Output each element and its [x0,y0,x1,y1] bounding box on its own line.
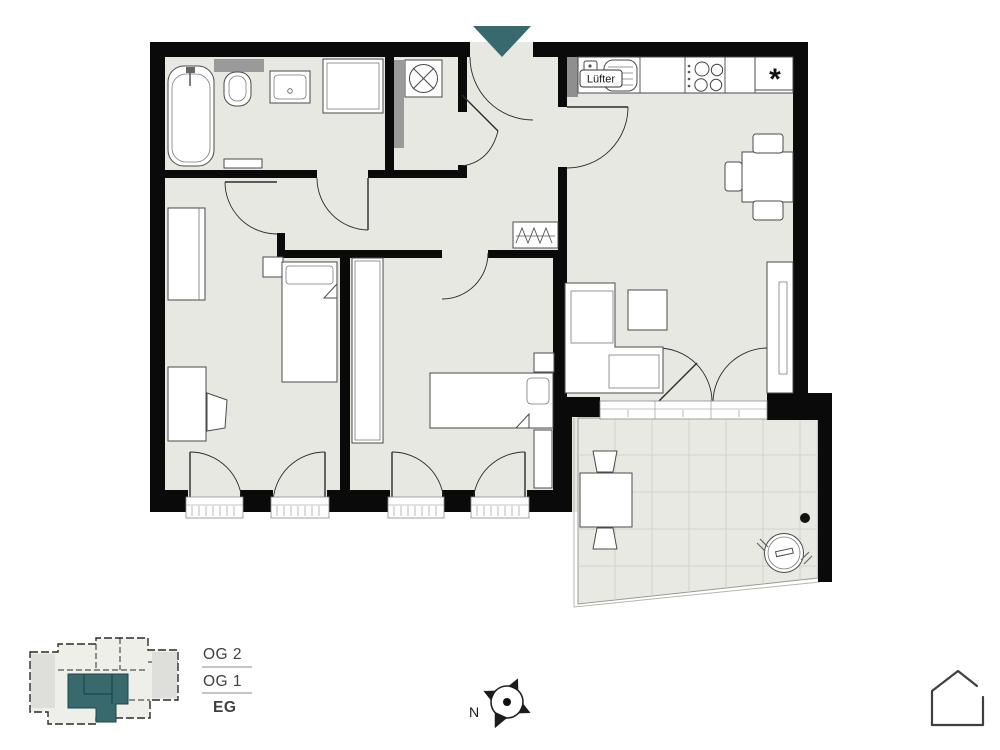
minimap [30,638,178,724]
floor-item-og2[interactable]: OG 2 [203,646,242,663]
toilet-cistern [214,59,264,72]
terrace-table-icon [580,473,632,527]
terrace-chair-icon [593,451,617,472]
minimap-shading [152,652,177,698]
bed-icon [282,262,337,382]
sideboard-icon [767,262,793,393]
terrace-chair-icon [593,528,617,549]
floor-item-og1[interactable]: OG 1 [203,673,242,690]
freezer-label: * [769,63,781,96]
wardrobe-icon [168,208,205,300]
coffee-table-icon [628,290,667,330]
floorplan-page: Lüfter * [0,0,1000,750]
nightstand-icon [263,257,283,277]
wardrobe-icon [352,258,383,443]
svg-text:Lüfter: Lüfter [587,74,615,86]
house-icon [932,671,983,725]
floor-item-eg[interactable]: EG [213,699,236,716]
terrace [574,418,820,607]
dining-chair-icon [753,201,783,220]
minimap-shading [31,654,55,708]
toilet-icon [224,72,251,106]
washbasin-icon [270,71,310,103]
bathtub-icon [168,66,214,166]
compass-icon: N [469,676,533,731]
nightstand-icon [534,353,554,372]
ventilation-label: Lüfter [580,70,622,87]
washing-machine-icon [405,60,442,97]
bed-icon [430,373,553,428]
floor-selector: OG 2 OG 1 EG [202,646,252,716]
kitchen-end-panel [567,57,578,97]
desk-chair-icon [207,393,227,431]
shower-icon [323,59,383,113]
bathmat-icon [224,159,262,168]
freezer-cell: * [755,57,793,96]
dining-chair-icon [753,134,783,153]
dresser-icon [534,430,552,488]
floor-plan: Lüfter * [0,0,1000,750]
utility-shelf [394,60,404,148]
radiator-icon [513,222,558,248]
dining-chair-icon [725,162,742,191]
compass-label: N [469,704,479,720]
drain-dot [800,513,810,523]
